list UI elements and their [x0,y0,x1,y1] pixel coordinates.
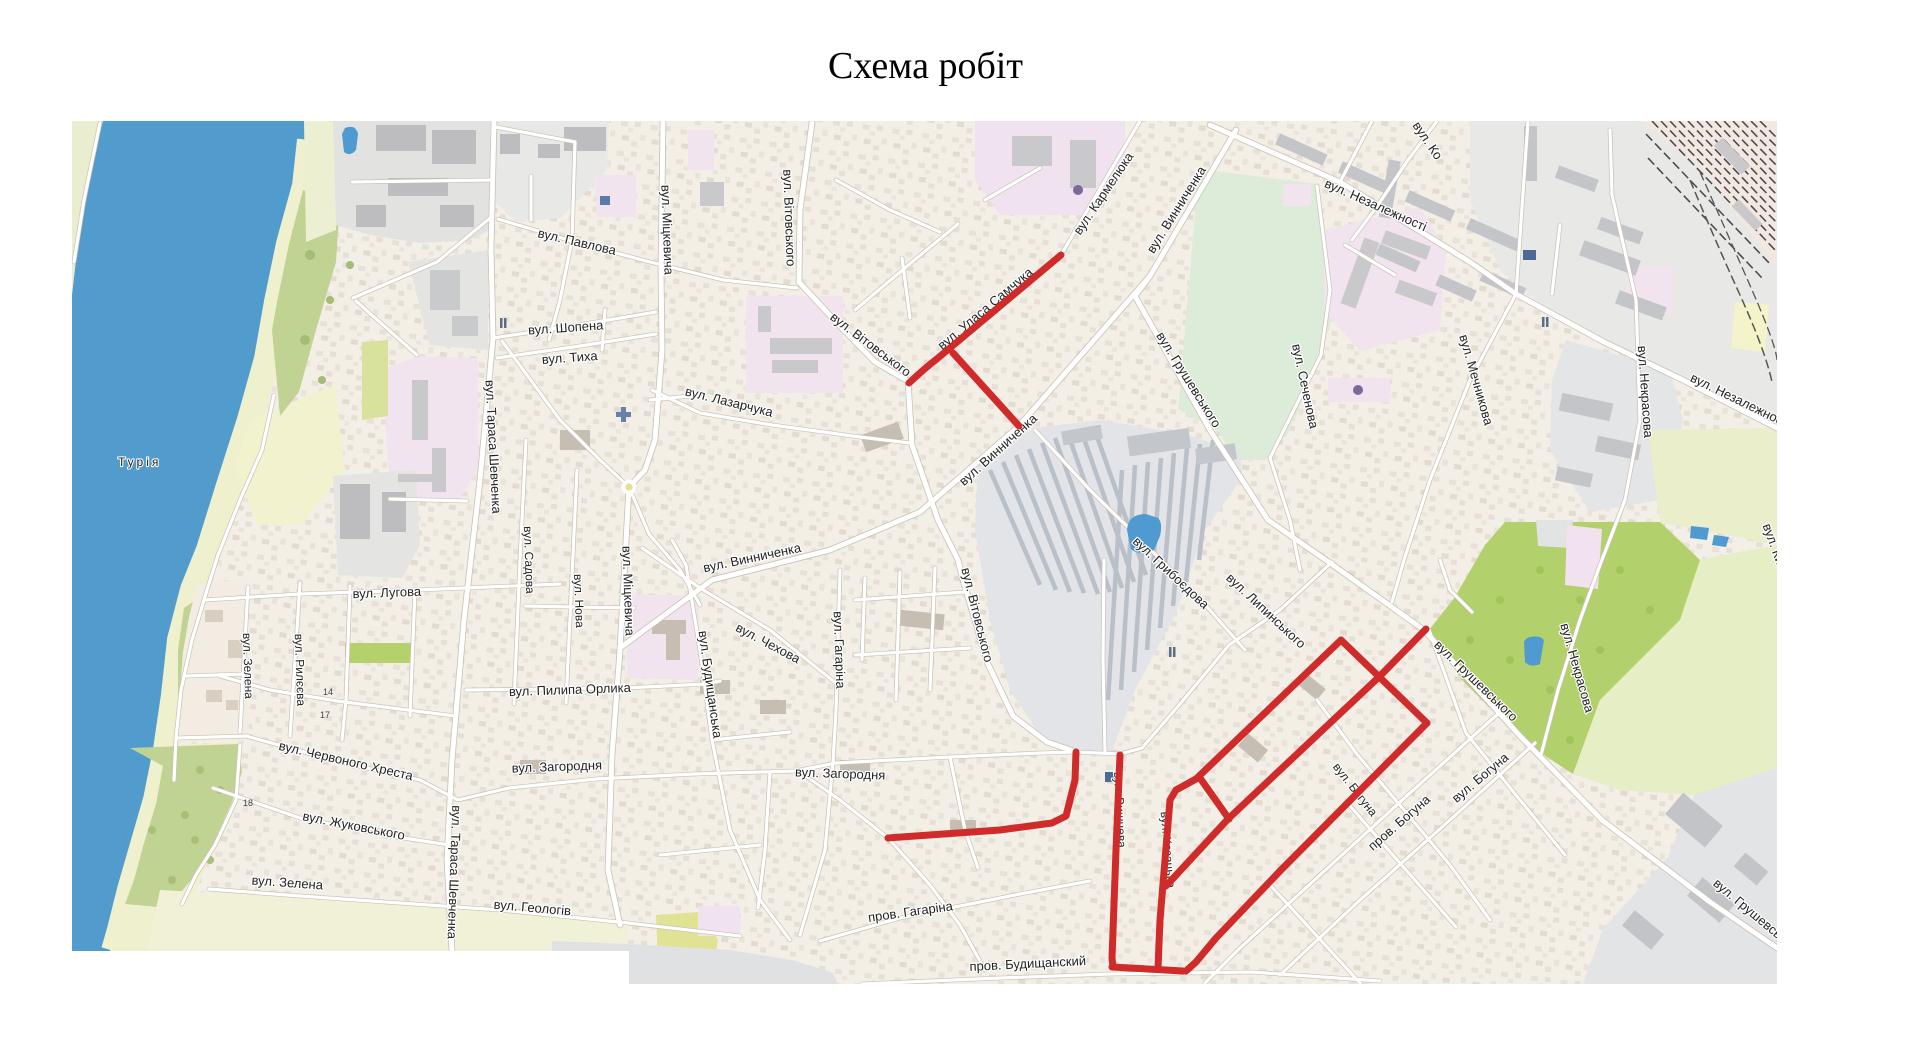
svg-text:18: 18 [243,798,253,808]
svg-text:14: 14 [323,687,333,697]
svg-text:вул. Зелена: вул. Зелена [240,633,256,700]
svg-text:вул. Рилєєва: вул. Рилєєва [292,633,309,706]
svg-text:Турія: Турія [118,455,161,469]
svg-text:вул. Гагаріна: вул. Гагаріна [831,611,849,690]
svg-text:вул. Загородня: вул. Загородня [511,757,602,775]
svg-text:вул. Садова: вул. Садова [521,526,537,594]
svg-text:17: 17 [320,710,330,720]
svg-text:вул. Загородня: вул. Загородня [795,764,886,782]
svg-text:вул. Лугова: вул. Лугова [352,584,422,601]
svg-text:вул. Міцкевича: вул. Міцкевича [658,185,676,276]
svg-text:вул. Міцкевича: вул. Міцкевича [619,546,637,637]
svg-text:вул. Нова: вул. Нова [571,574,587,629]
